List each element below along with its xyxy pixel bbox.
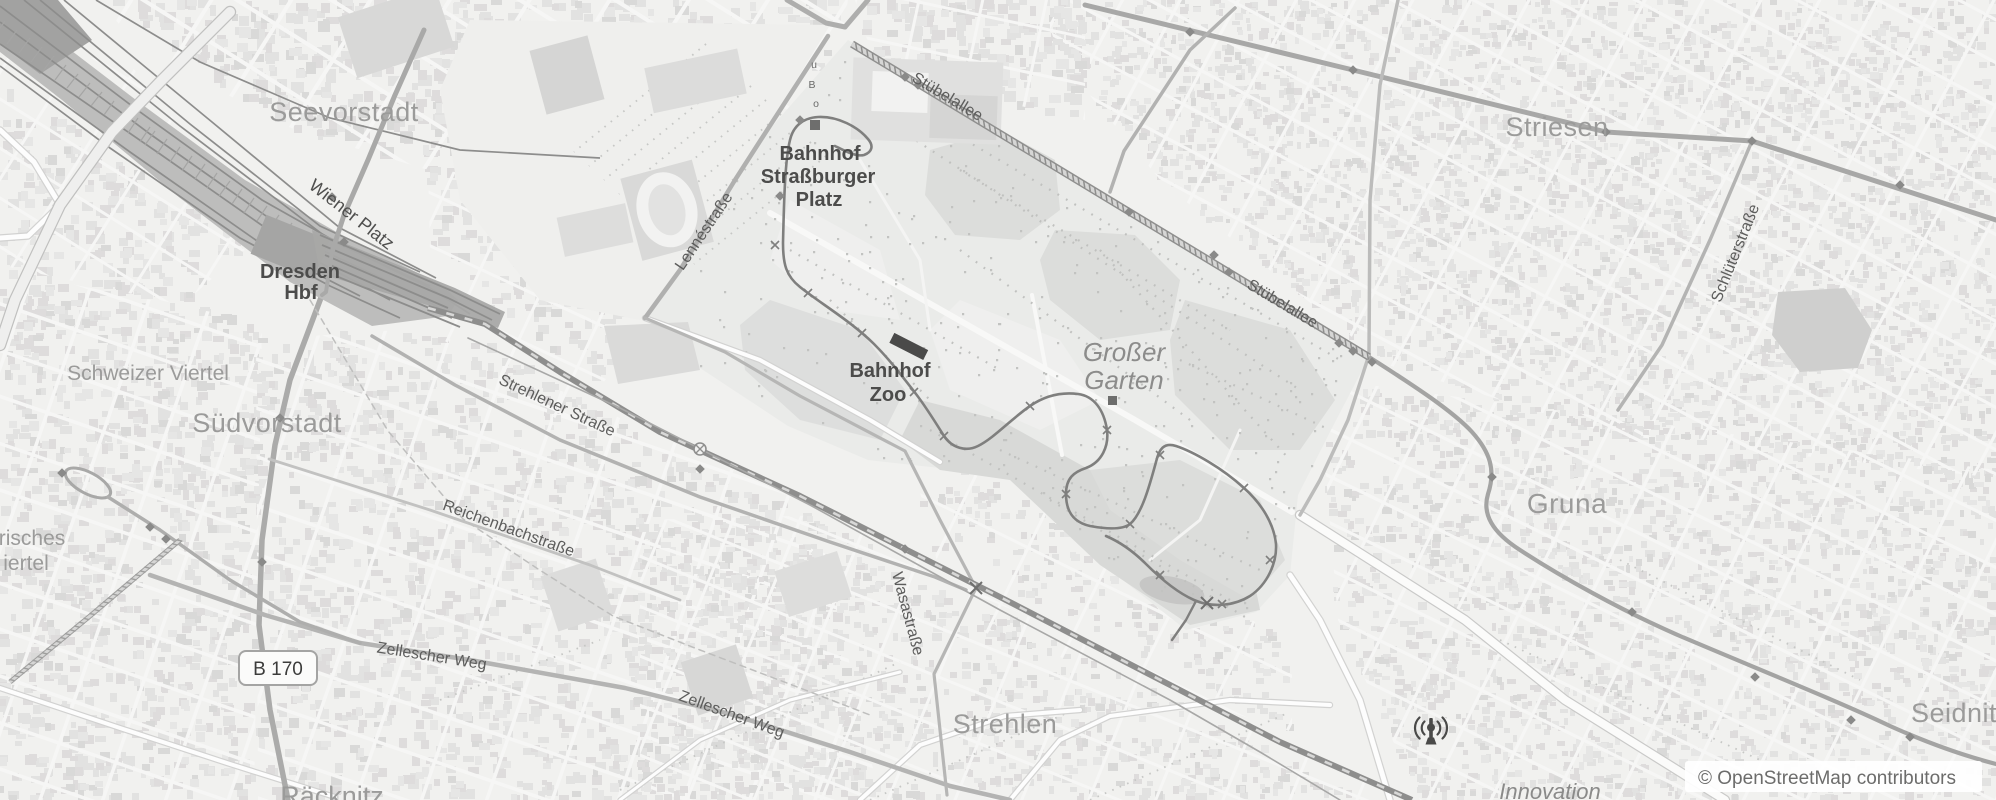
svg-text:Großer: Großer	[1083, 337, 1167, 367]
svg-text:© OpenStreetMap contributors: © OpenStreetMap contributors	[1698, 768, 1956, 789]
svg-text:o: o	[813, 98, 819, 110]
svg-text:Seidnit.: Seidnit.	[1911, 698, 1996, 728]
svg-text:Bahnhof: Bahnhof	[849, 360, 930, 382]
svg-text:Dresden: Dresden	[260, 261, 340, 283]
svg-text:Südvorstadt: Südvorstadt	[192, 408, 342, 438]
svg-text:risches: risches	[0, 527, 65, 550]
svg-text:Platz: Platz	[796, 189, 843, 211]
svg-text:Seevorstadt: Seevorstadt	[269, 97, 419, 127]
svg-text:Hbf: Hbf	[284, 282, 318, 304]
svg-text:Striesen: Striesen	[1505, 112, 1608, 142]
svg-text:Garten: Garten	[1084, 365, 1164, 395]
svg-text:B: B	[808, 79, 815, 91]
svg-text:Innovation: Innovation	[1499, 779, 1601, 800]
svg-text:Zoo: Zoo	[870, 384, 907, 406]
svg-text:Gruna: Gruna	[1527, 488, 1607, 519]
svg-text:iertel: iertel	[3, 552, 49, 575]
svg-text:Schweizer Viertel: Schweizer Viertel	[67, 362, 229, 385]
svg-text:B 170: B 170	[253, 659, 303, 680]
svg-text:Räcknitz: Räcknitz	[280, 781, 384, 800]
svg-text:Bahnhof: Bahnhof	[779, 143, 860, 165]
svg-text:u: u	[811, 59, 817, 71]
svg-text:Straßburger: Straßburger	[761, 166, 876, 188]
svg-text:Strehlen: Strehlen	[953, 709, 1058, 739]
